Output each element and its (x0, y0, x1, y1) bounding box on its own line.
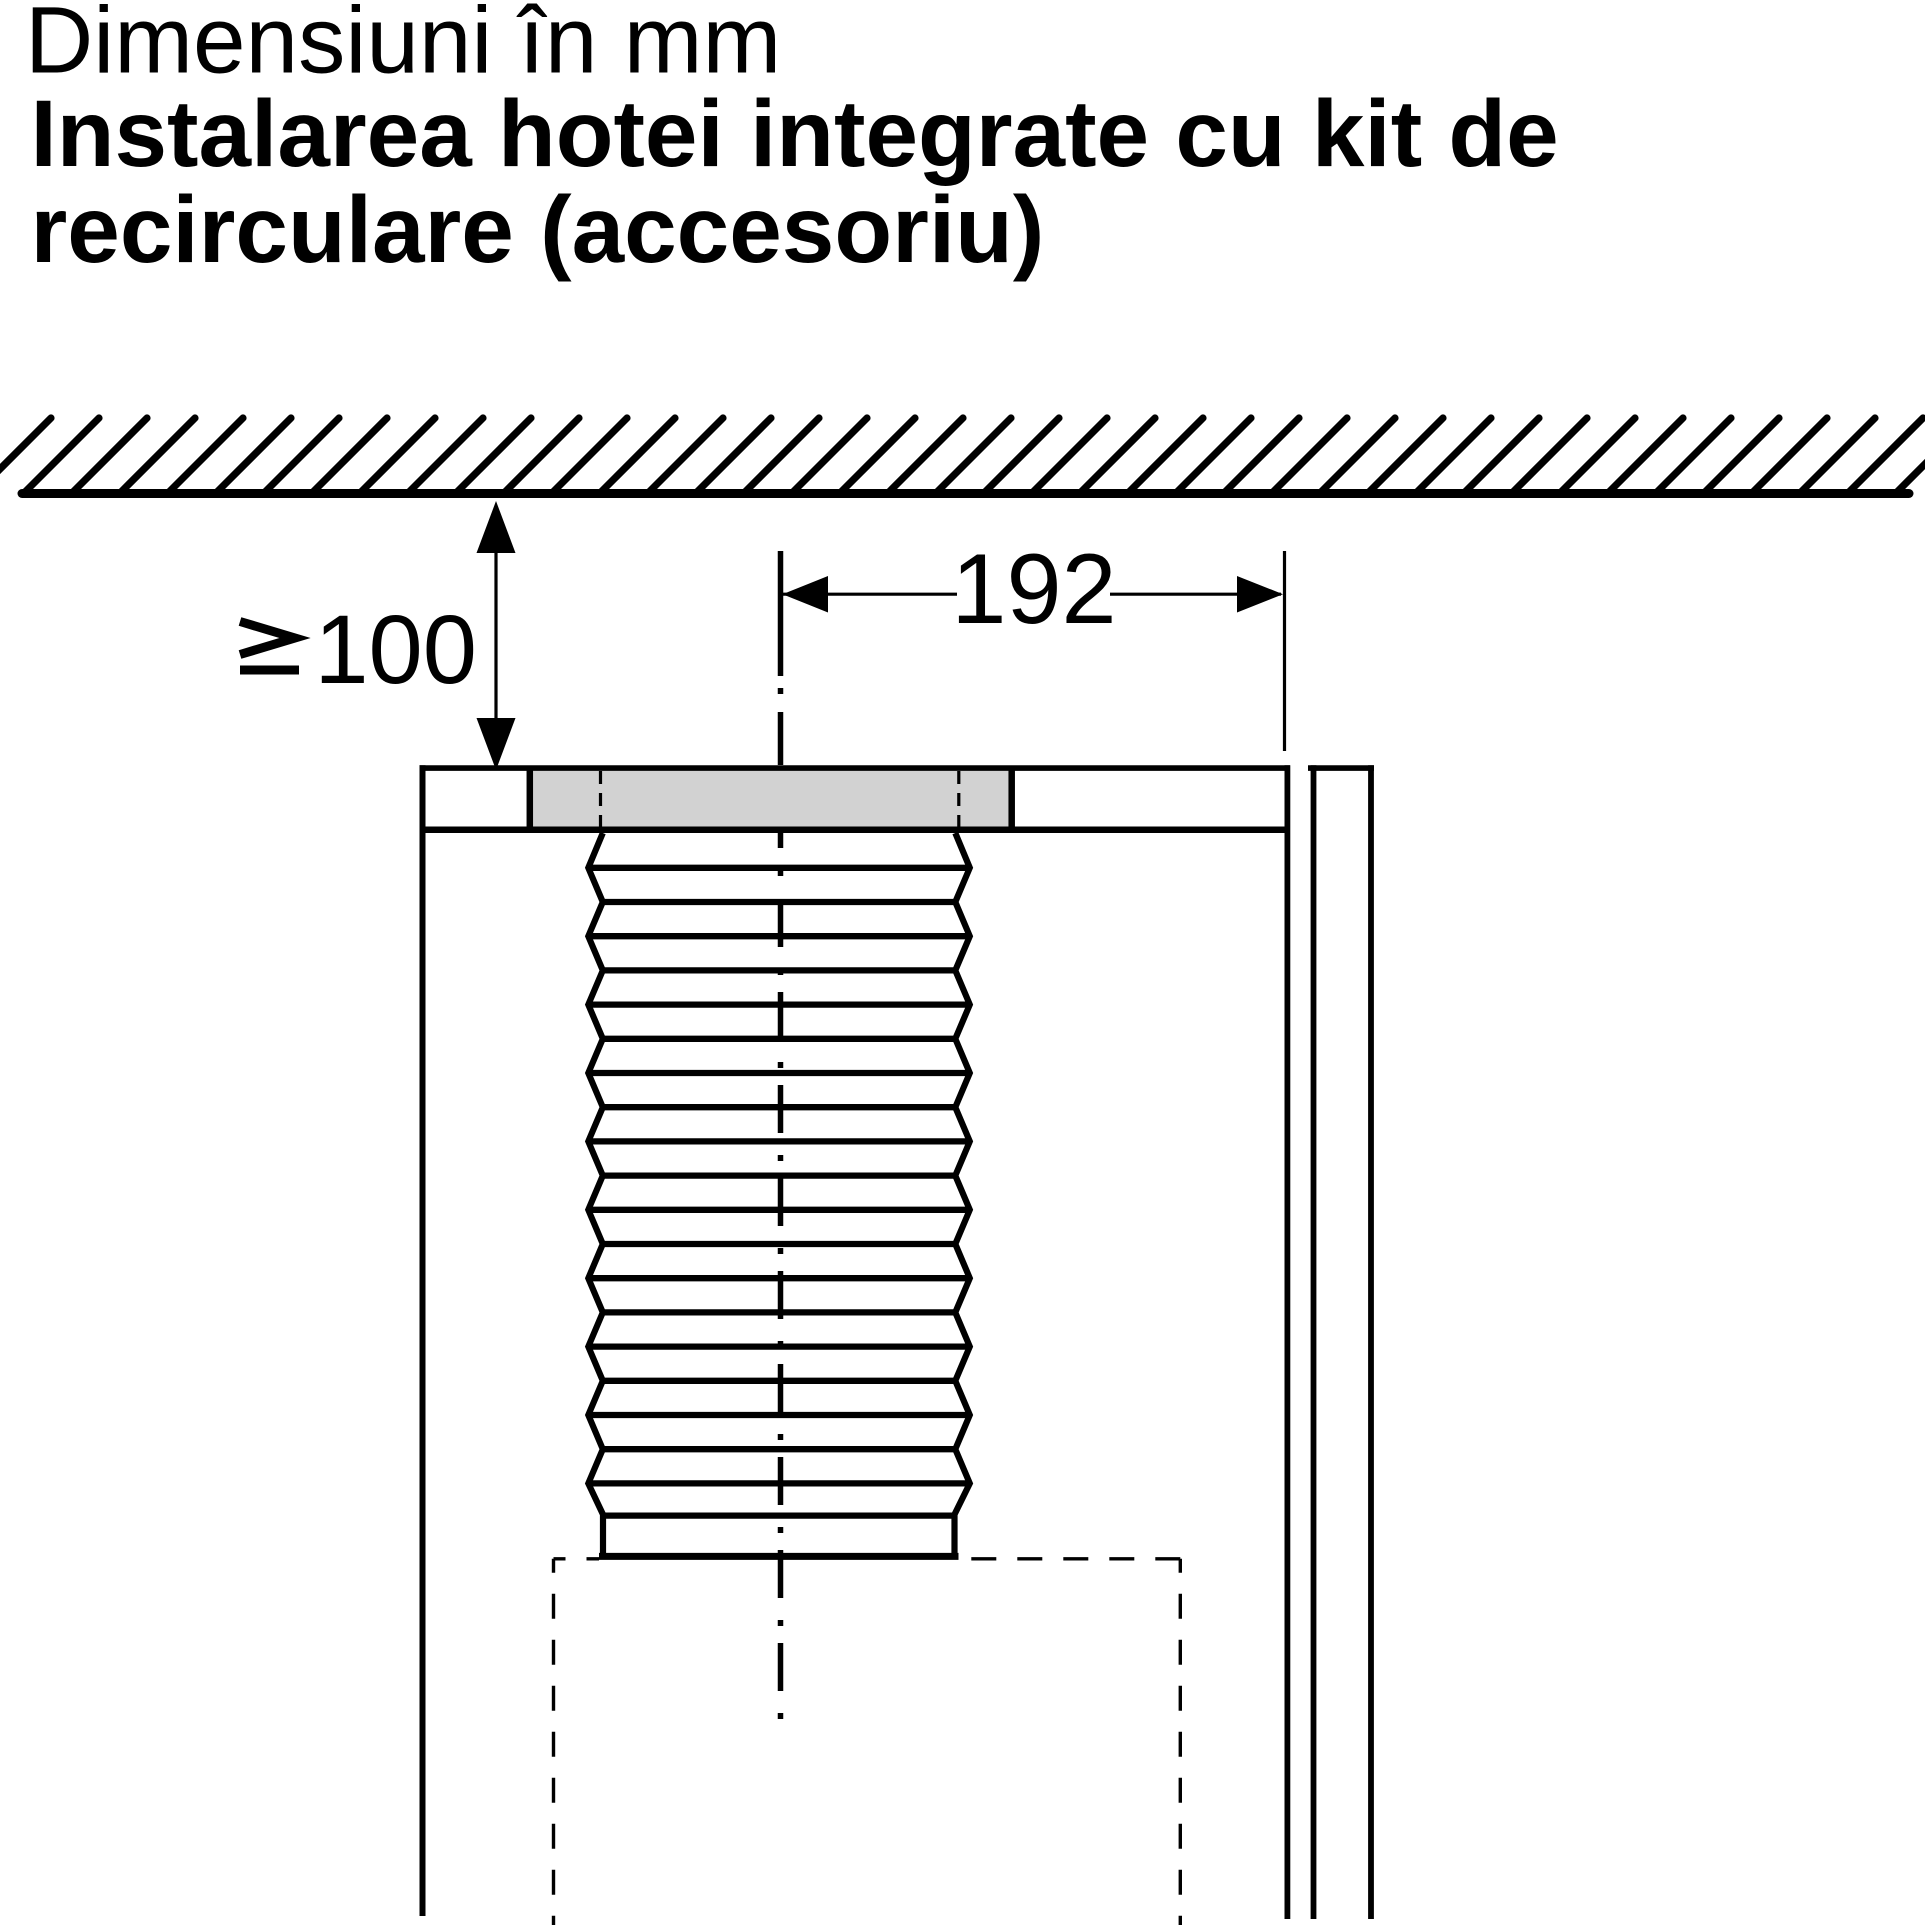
svg-text:Instalarea hotei integrate cu: Instalarea hotei integrate cu kit de (31, 81, 1559, 187)
svg-text:192: 192 (951, 533, 1116, 644)
svg-text:recirculare (accesoriu): recirculare (accesoriu) (31, 177, 1045, 283)
svg-text:100: 100 (314, 595, 477, 704)
svg-text:Dimensiuni în mm: Dimensiuni în mm (25, 0, 781, 94)
